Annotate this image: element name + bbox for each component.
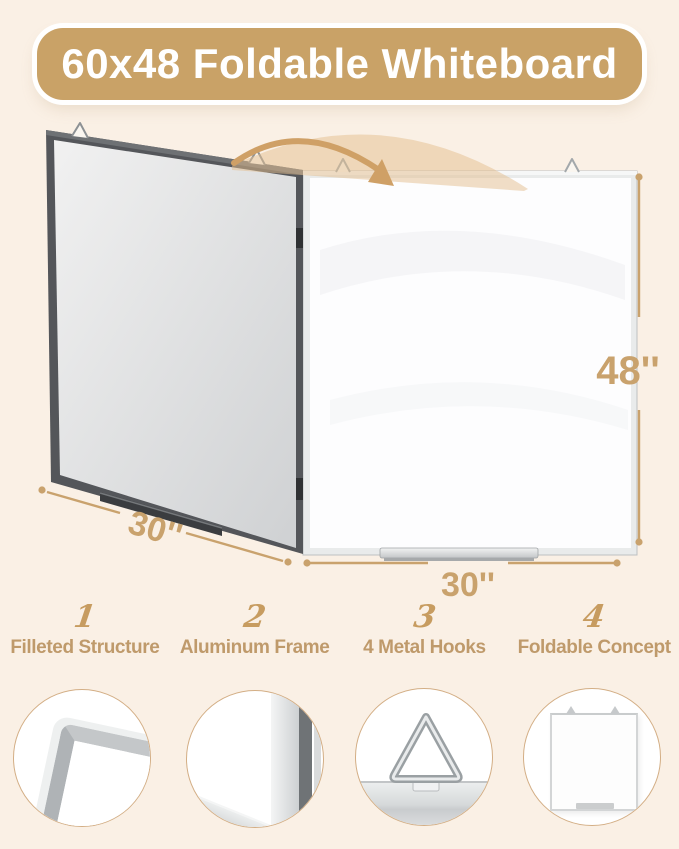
feature-metal-hooks: 3 4 Metal Hooks bbox=[340, 600, 510, 659]
height-label: 48'' bbox=[596, 349, 660, 393]
feature-filleted-structure: 1 Filleted Structure bbox=[0, 600, 170, 659]
hanging-hook-icon bbox=[565, 159, 579, 172]
hanging-hook-icon bbox=[566, 706, 576, 714]
feature-number: 1 bbox=[72, 600, 98, 634]
feature-label: Aluminum Frame bbox=[180, 637, 330, 659]
hanging-hook-icon bbox=[610, 706, 620, 714]
bottom-width-label: 30'' bbox=[441, 566, 495, 604]
product-infographic: 60x48 Foldable Whiteboard bbox=[0, 0, 679, 849]
feature-label: 4 Metal Hooks bbox=[363, 637, 486, 659]
feature-number: 2 bbox=[241, 600, 267, 634]
hinge bbox=[296, 478, 303, 500]
marker-tray-shadow bbox=[384, 558, 534, 561]
feature-list: 1 Filleted Structure 2 Aluminum Frame 3 … bbox=[0, 600, 679, 659]
feature-label: Foldable Concept bbox=[518, 637, 671, 659]
width-dimension-bottom: 30'' bbox=[303, 559, 620, 604]
feature-number: 4 bbox=[581, 600, 607, 634]
folded-board-icon bbox=[550, 713, 638, 811]
feature-foldable-concept: 4 Foldable Concept bbox=[509, 600, 679, 659]
detail-circle-filleted-corner bbox=[13, 689, 151, 827]
detail-circle-metal-hook bbox=[355, 688, 493, 826]
marker-tray bbox=[380, 548, 538, 558]
feature-label: Filleted Structure bbox=[10, 637, 159, 659]
left-panel bbox=[46, 123, 303, 554]
right-panel bbox=[303, 159, 637, 561]
marker-tray bbox=[576, 803, 614, 809]
detail-circle-foldable-concept bbox=[523, 688, 661, 826]
feature-aluminum-frame: 2 Aluminum Frame bbox=[170, 600, 340, 659]
detail-circle-aluminum-frame bbox=[186, 690, 324, 828]
hinge bbox=[296, 228, 303, 248]
metal-hook-icon bbox=[356, 689, 493, 826]
feature-number: 3 bbox=[411, 600, 437, 634]
hanging-hook-icon bbox=[72, 123, 88, 138]
